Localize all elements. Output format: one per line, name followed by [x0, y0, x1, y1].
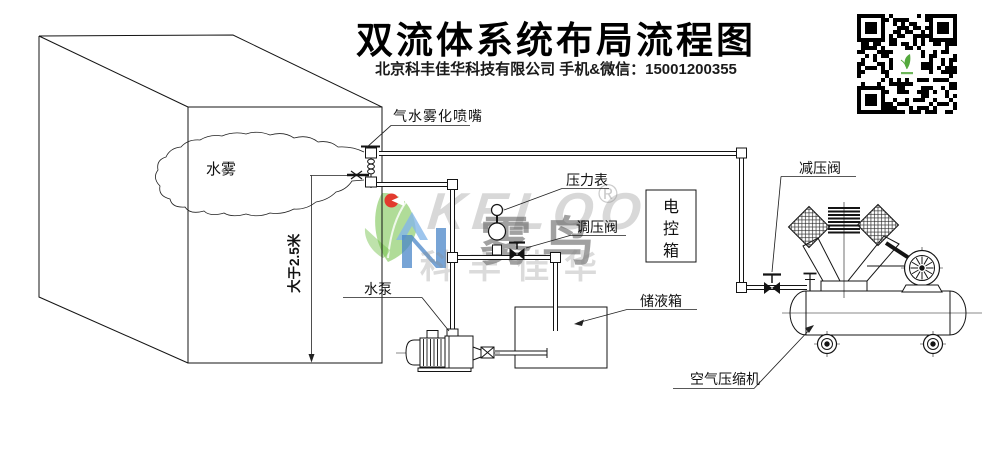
liquid-tank-label: 储液箱: [640, 293, 682, 309]
air-compressor-label: 空气压缩机: [690, 371, 760, 387]
liquid-tank: [515, 307, 607, 368]
control-box-char-2: 控: [663, 220, 679, 238]
room-box: [39, 35, 382, 363]
air-compressor: [782, 202, 982, 357]
control-box-char-1: 电: [663, 198, 679, 216]
pressure-gauge-label: 压力表: [566, 172, 608, 188]
dimension-arrow: [309, 354, 315, 363]
mist-label: 水雾: [206, 161, 236, 178]
flow-diagram-page: KELOO 雾鸟 科丰佳华 ® 水雾 大于2.5米: [0, 0, 992, 460]
nozzle-label: 气水雾化喷嘴: [393, 108, 483, 124]
regulating-valve-label: 调压阀: [576, 219, 618, 235]
pressure-gauge: [489, 205, 506, 256]
qr-code: [855, 12, 959, 116]
control-box: 电 控 箱: [646, 190, 696, 262]
reducing-valve: [763, 275, 781, 295]
cylinder-head-right: [857, 204, 898, 245]
qr-center-leaf-icon: [893, 50, 921, 78]
page-title: 双流体系统布局流程图: [330, 10, 782, 64]
height-dimension-label: 大于2.5米: [286, 233, 302, 293]
reducing-valve-label: 减压阀: [799, 160, 841, 176]
height-dimension: 大于2.5米: [286, 176, 352, 363]
control-box-char-3: 箱: [663, 242, 679, 260]
water-pump-label: 水泵: [364, 281, 392, 297]
mist-cloud: 水雾: [155, 132, 364, 216]
water-pump: [396, 329, 500, 372]
page-subtitle: 北京科丰佳华科技有限公司 手机&微信：15001200355: [330, 58, 782, 79]
cylinder-head-left: [788, 206, 829, 247]
water-pipe-nozzle: [377, 185, 453, 333]
motor-fan: [901, 247, 943, 292]
